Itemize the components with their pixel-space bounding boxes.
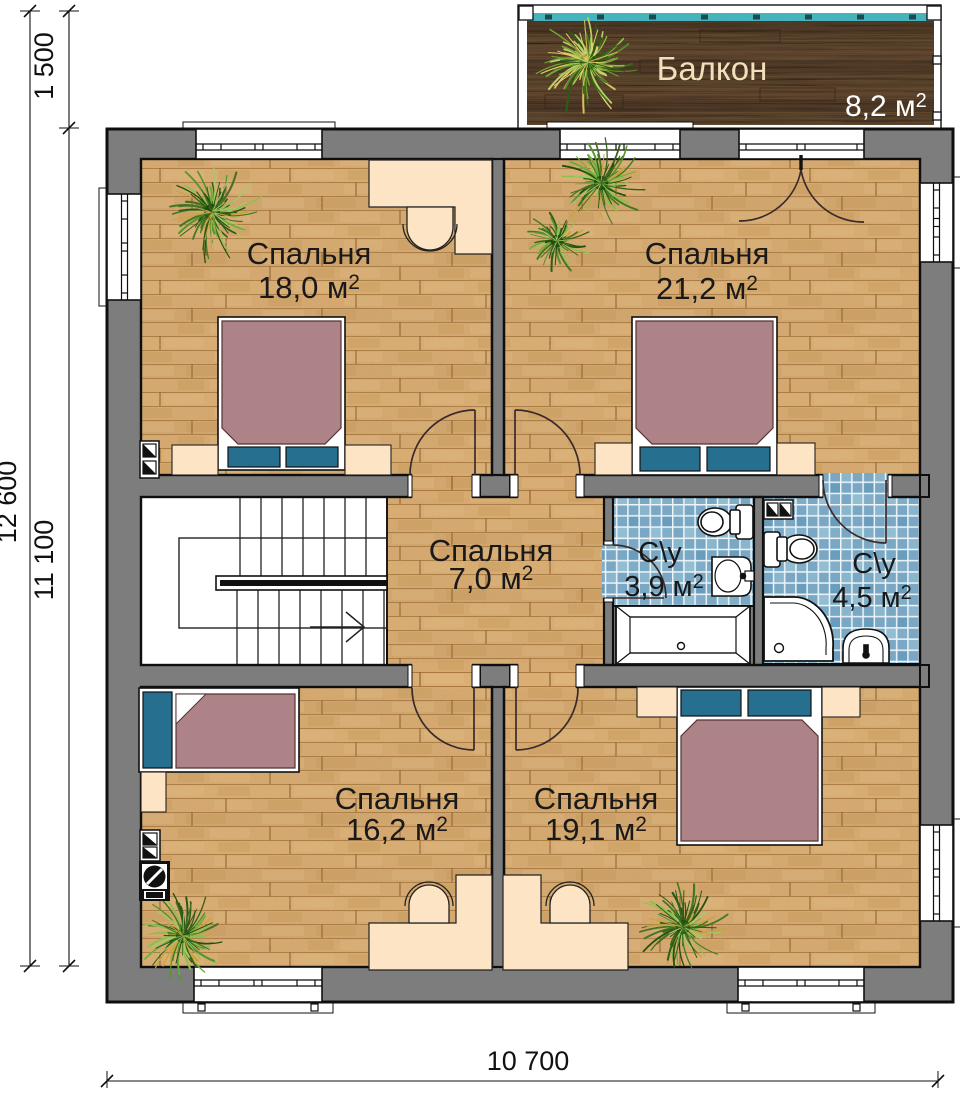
svg-text:Спальня: Спальня — [335, 781, 460, 816]
svg-text:4,5 м2: 4,5 м2 — [832, 582, 911, 614]
svg-text:18,0 м2: 18,0 м2 — [258, 270, 360, 305]
svg-text:С\у: С\у — [638, 537, 682, 569]
svg-text:3,9 м2: 3,9 м2 — [624, 571, 703, 603]
svg-text:11 100: 11 100 — [29, 520, 59, 601]
svg-text:Спальня: Спальня — [645, 236, 770, 271]
svg-text:Балкон: Балкон — [657, 50, 768, 87]
svg-text:10 700: 10 700 — [487, 1046, 570, 1076]
svg-text:21,2 м2: 21,2 м2 — [656, 271, 758, 306]
svg-text:16,2 м2: 16,2 м2 — [346, 812, 448, 847]
svg-text:7,0 м2: 7,0 м2 — [449, 561, 534, 596]
svg-text:19,1 м2: 19,1 м2 — [545, 812, 647, 847]
svg-text:1 500: 1 500 — [29, 32, 59, 100]
svg-text:12 600: 12 600 — [0, 461, 22, 544]
svg-text:Спальня: Спальня — [247, 236, 372, 271]
svg-text:Спальня: Спальня — [534, 781, 659, 816]
svg-text:8,2 м2: 8,2 м2 — [845, 90, 927, 123]
svg-text:С\у: С\у — [852, 548, 896, 580]
